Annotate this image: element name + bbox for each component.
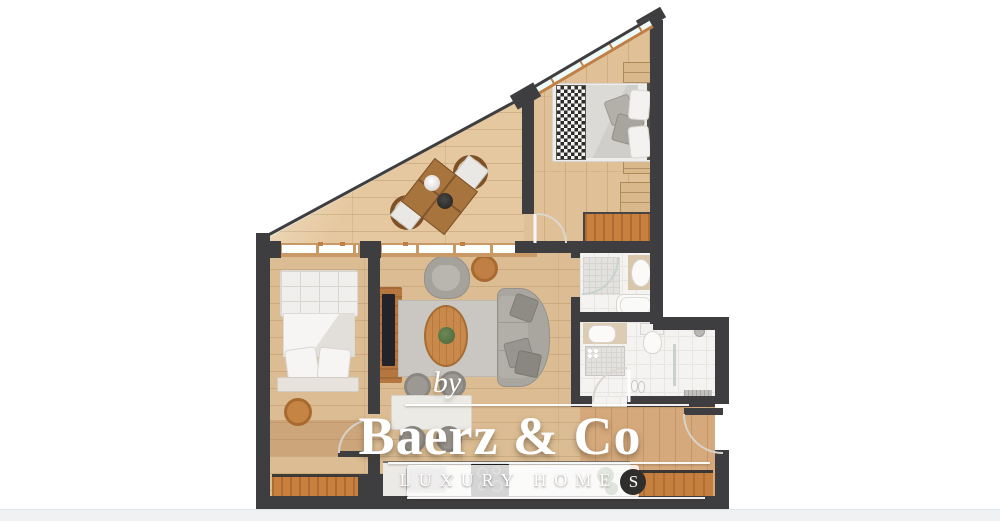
slippers	[631, 380, 638, 392]
wall-hall-top	[515, 241, 657, 253]
shower-tray	[583, 257, 620, 295]
page-bottom-strip	[0, 509, 1000, 521]
window-glazing	[282, 245, 358, 253]
armchair-seat	[432, 265, 460, 291]
window-frame-tick	[340, 242, 345, 246]
shower-glass	[673, 344, 676, 386]
bed-top-throw	[556, 85, 586, 160]
bed-left-bench	[277, 377, 359, 392]
wall-bedroom-left	[368, 256, 380, 414]
window-frame-tick	[403, 242, 408, 246]
wall-left	[256, 233, 270, 510]
watermark-brand-text: Baerz & Co	[359, 406, 642, 466]
window-glazing	[382, 245, 515, 253]
watermark-tagline-text: LUXURY HOME	[400, 470, 619, 490]
watermark-by-text: by	[433, 366, 461, 399]
slippers	[638, 381, 645, 393]
washer-knobs	[587, 348, 599, 358]
wall-bedroom-top-west	[522, 95, 534, 214]
bathroom-small-basin	[631, 259, 651, 287]
floor-plan-page: by Baerz & Co LUXURY HOMES	[0, 0, 1000, 521]
watermark-tagline: LUXURY HOMES	[400, 469, 647, 495]
door-leaf-entrance	[684, 408, 723, 415]
bed-left-headboard	[280, 270, 358, 317]
watermark-by: by	[407, 366, 487, 400]
watermark-banner-bottomline	[407, 497, 705, 499]
bedroom-top-desk	[620, 182, 652, 214]
wall-kitchen-end	[358, 474, 383, 498]
wall-bath-right	[715, 317, 729, 404]
watermark-banner: LUXURY HOMES	[407, 465, 639, 498]
coffee-table-plant	[438, 327, 455, 344]
bed-top-pillow-white	[627, 125, 651, 159]
watermark-brand: Baerz & Co	[350, 405, 650, 467]
watermark-s-badge: S	[620, 469, 646, 495]
terrace-table-kettle	[437, 193, 453, 209]
side-pouf	[471, 255, 498, 282]
wall-right-main	[650, 20, 663, 324]
wall-bath-top	[653, 317, 729, 330]
bedroom-left-stool	[284, 398, 312, 426]
watermark-banner-topline	[388, 462, 710, 464]
wall-bath-divider	[571, 312, 655, 322]
terrace-table-bowl	[424, 175, 440, 191]
wall-bath-west-upper	[571, 247, 580, 258]
window-frame-tick	[460, 242, 465, 246]
sofa-pillow	[514, 350, 542, 378]
tv	[382, 294, 395, 366]
window-wall-pier	[262, 241, 281, 258]
bedroom-top-wardrobe	[583, 212, 653, 243]
bed-top-pillow-white	[628, 89, 652, 121]
wall-right-lower	[715, 450, 729, 502]
bathroom-large-basin	[588, 325, 616, 343]
toilet-bowl	[643, 331, 662, 354]
window-frame-tick	[318, 242, 323, 246]
